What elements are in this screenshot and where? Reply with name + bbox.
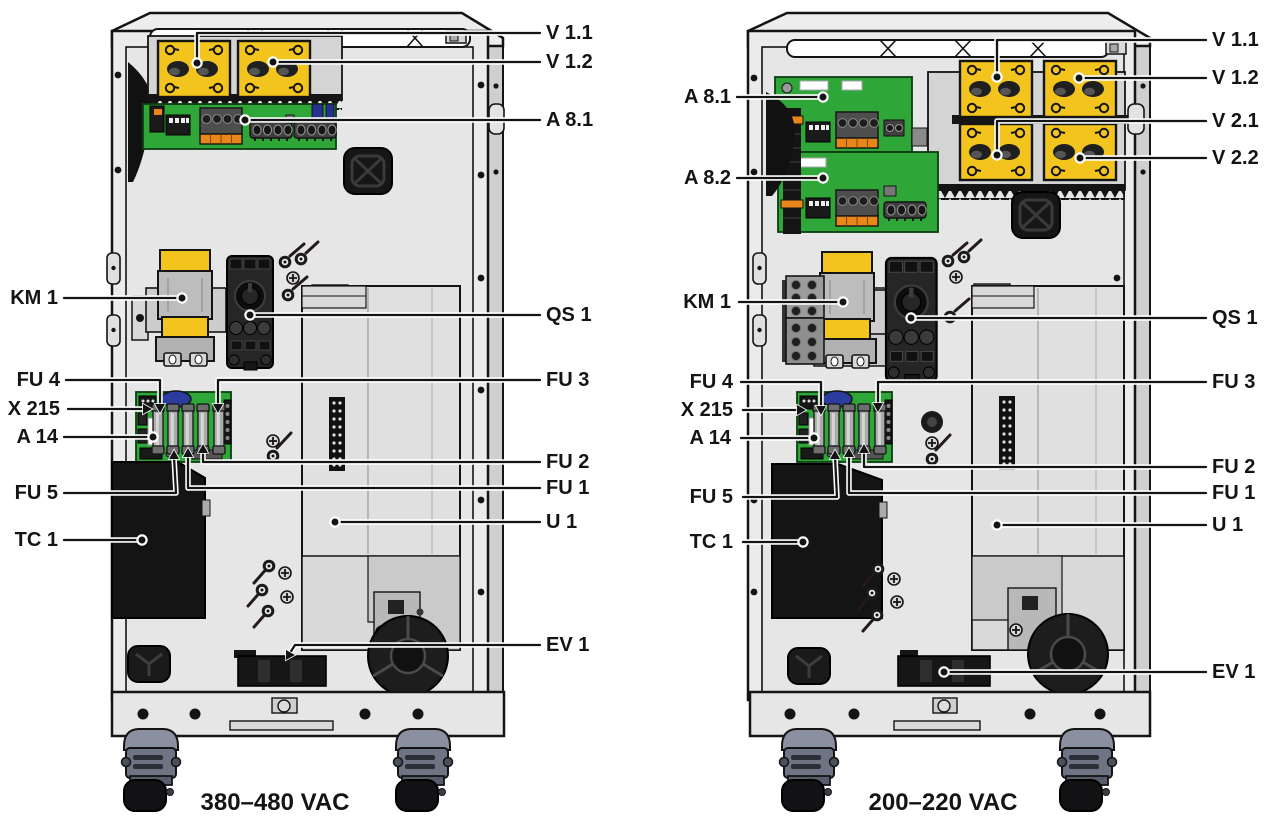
module-v1-1 bbox=[158, 41, 230, 97]
board-a8-2 bbox=[778, 152, 938, 232]
corner-bumper bbox=[788, 648, 830, 684]
label-tc1: TC 1 bbox=[15, 529, 58, 551]
label-u1: U 1 bbox=[546, 511, 577, 533]
label-km1: KM 1 bbox=[10, 287, 58, 309]
label-fu1: FU 1 bbox=[1212, 482, 1255, 504]
module-v2-2 bbox=[1044, 124, 1116, 180]
caption-left-voltage: 380–480 VAC bbox=[201, 789, 350, 816]
cabinet-380-480 bbox=[107, 13, 504, 811]
label-fu3: FU 3 bbox=[1212, 371, 1255, 393]
caster bbox=[1058, 729, 1117, 811]
module-v1-2 bbox=[238, 41, 310, 97]
label-v1-2: V 1.2 bbox=[1212, 67, 1259, 89]
label-fu2: FU 2 bbox=[1212, 456, 1255, 478]
label-a14: A 14 bbox=[689, 427, 731, 449]
label-qs1: QS 1 bbox=[546, 304, 592, 326]
base bbox=[112, 692, 504, 736]
label-v1-1: V 1.1 bbox=[1212, 29, 1259, 51]
label-fu5: FU 5 bbox=[15, 482, 58, 504]
cable-grommet bbox=[1012, 192, 1060, 238]
corner-bumper bbox=[128, 646, 170, 682]
label-v1-1: V 1.1 bbox=[546, 22, 593, 44]
label-ev1: EV 1 bbox=[1212, 661, 1255, 683]
label-v1-2: V 1.2 bbox=[546, 51, 593, 73]
label-a8-2: A 8.2 bbox=[684, 167, 731, 189]
label-fu1: FU 1 bbox=[546, 477, 589, 499]
label-a8-1: A 8.1 bbox=[684, 86, 731, 108]
label-tc1: TC 1 bbox=[690, 531, 733, 553]
label-a8-1: A 8.1 bbox=[546, 109, 593, 131]
module-v1-2 bbox=[1044, 61, 1116, 117]
drive-u1 bbox=[302, 286, 460, 650]
label-km1: KM 1 bbox=[683, 291, 731, 313]
cable-grommet bbox=[344, 148, 392, 194]
label-ev1: EV 1 bbox=[546, 634, 589, 656]
figure-canvas: KM 1 FU 4 X 215 A 14 FU 5 TC 1 V 1.1 V 1… bbox=[0, 0, 1280, 832]
caption-right-voltage: 200–220 VAC bbox=[869, 789, 1018, 816]
label-a14: A 14 bbox=[16, 426, 58, 448]
label-x215: X 215 bbox=[8, 398, 60, 420]
label-fu4: FU 4 bbox=[17, 369, 61, 391]
label-x215: X 215 bbox=[681, 399, 733, 421]
cabinet-diagram: KM 1 FU 4 X 215 A 14 FU 5 TC 1 V 1.1 V 1… bbox=[0, 0, 1280, 832]
label-v2-2: V 2.2 bbox=[1212, 147, 1259, 169]
label-qs1: QS 1 bbox=[1212, 307, 1258, 329]
label-fu5: FU 5 bbox=[690, 486, 733, 508]
caster bbox=[394, 729, 453, 811]
board-a8-1 bbox=[143, 104, 336, 149]
label-fu3: FU 3 bbox=[546, 369, 589, 391]
label-u1: U 1 bbox=[1212, 514, 1243, 536]
cabinet-200-220 bbox=[748, 13, 1150, 811]
label-v2-1: V 2.1 bbox=[1212, 110, 1259, 132]
caster bbox=[780, 729, 839, 811]
caster bbox=[122, 729, 181, 811]
label-fu2: FU 2 bbox=[546, 451, 589, 473]
label-fu4: FU 4 bbox=[690, 371, 734, 393]
